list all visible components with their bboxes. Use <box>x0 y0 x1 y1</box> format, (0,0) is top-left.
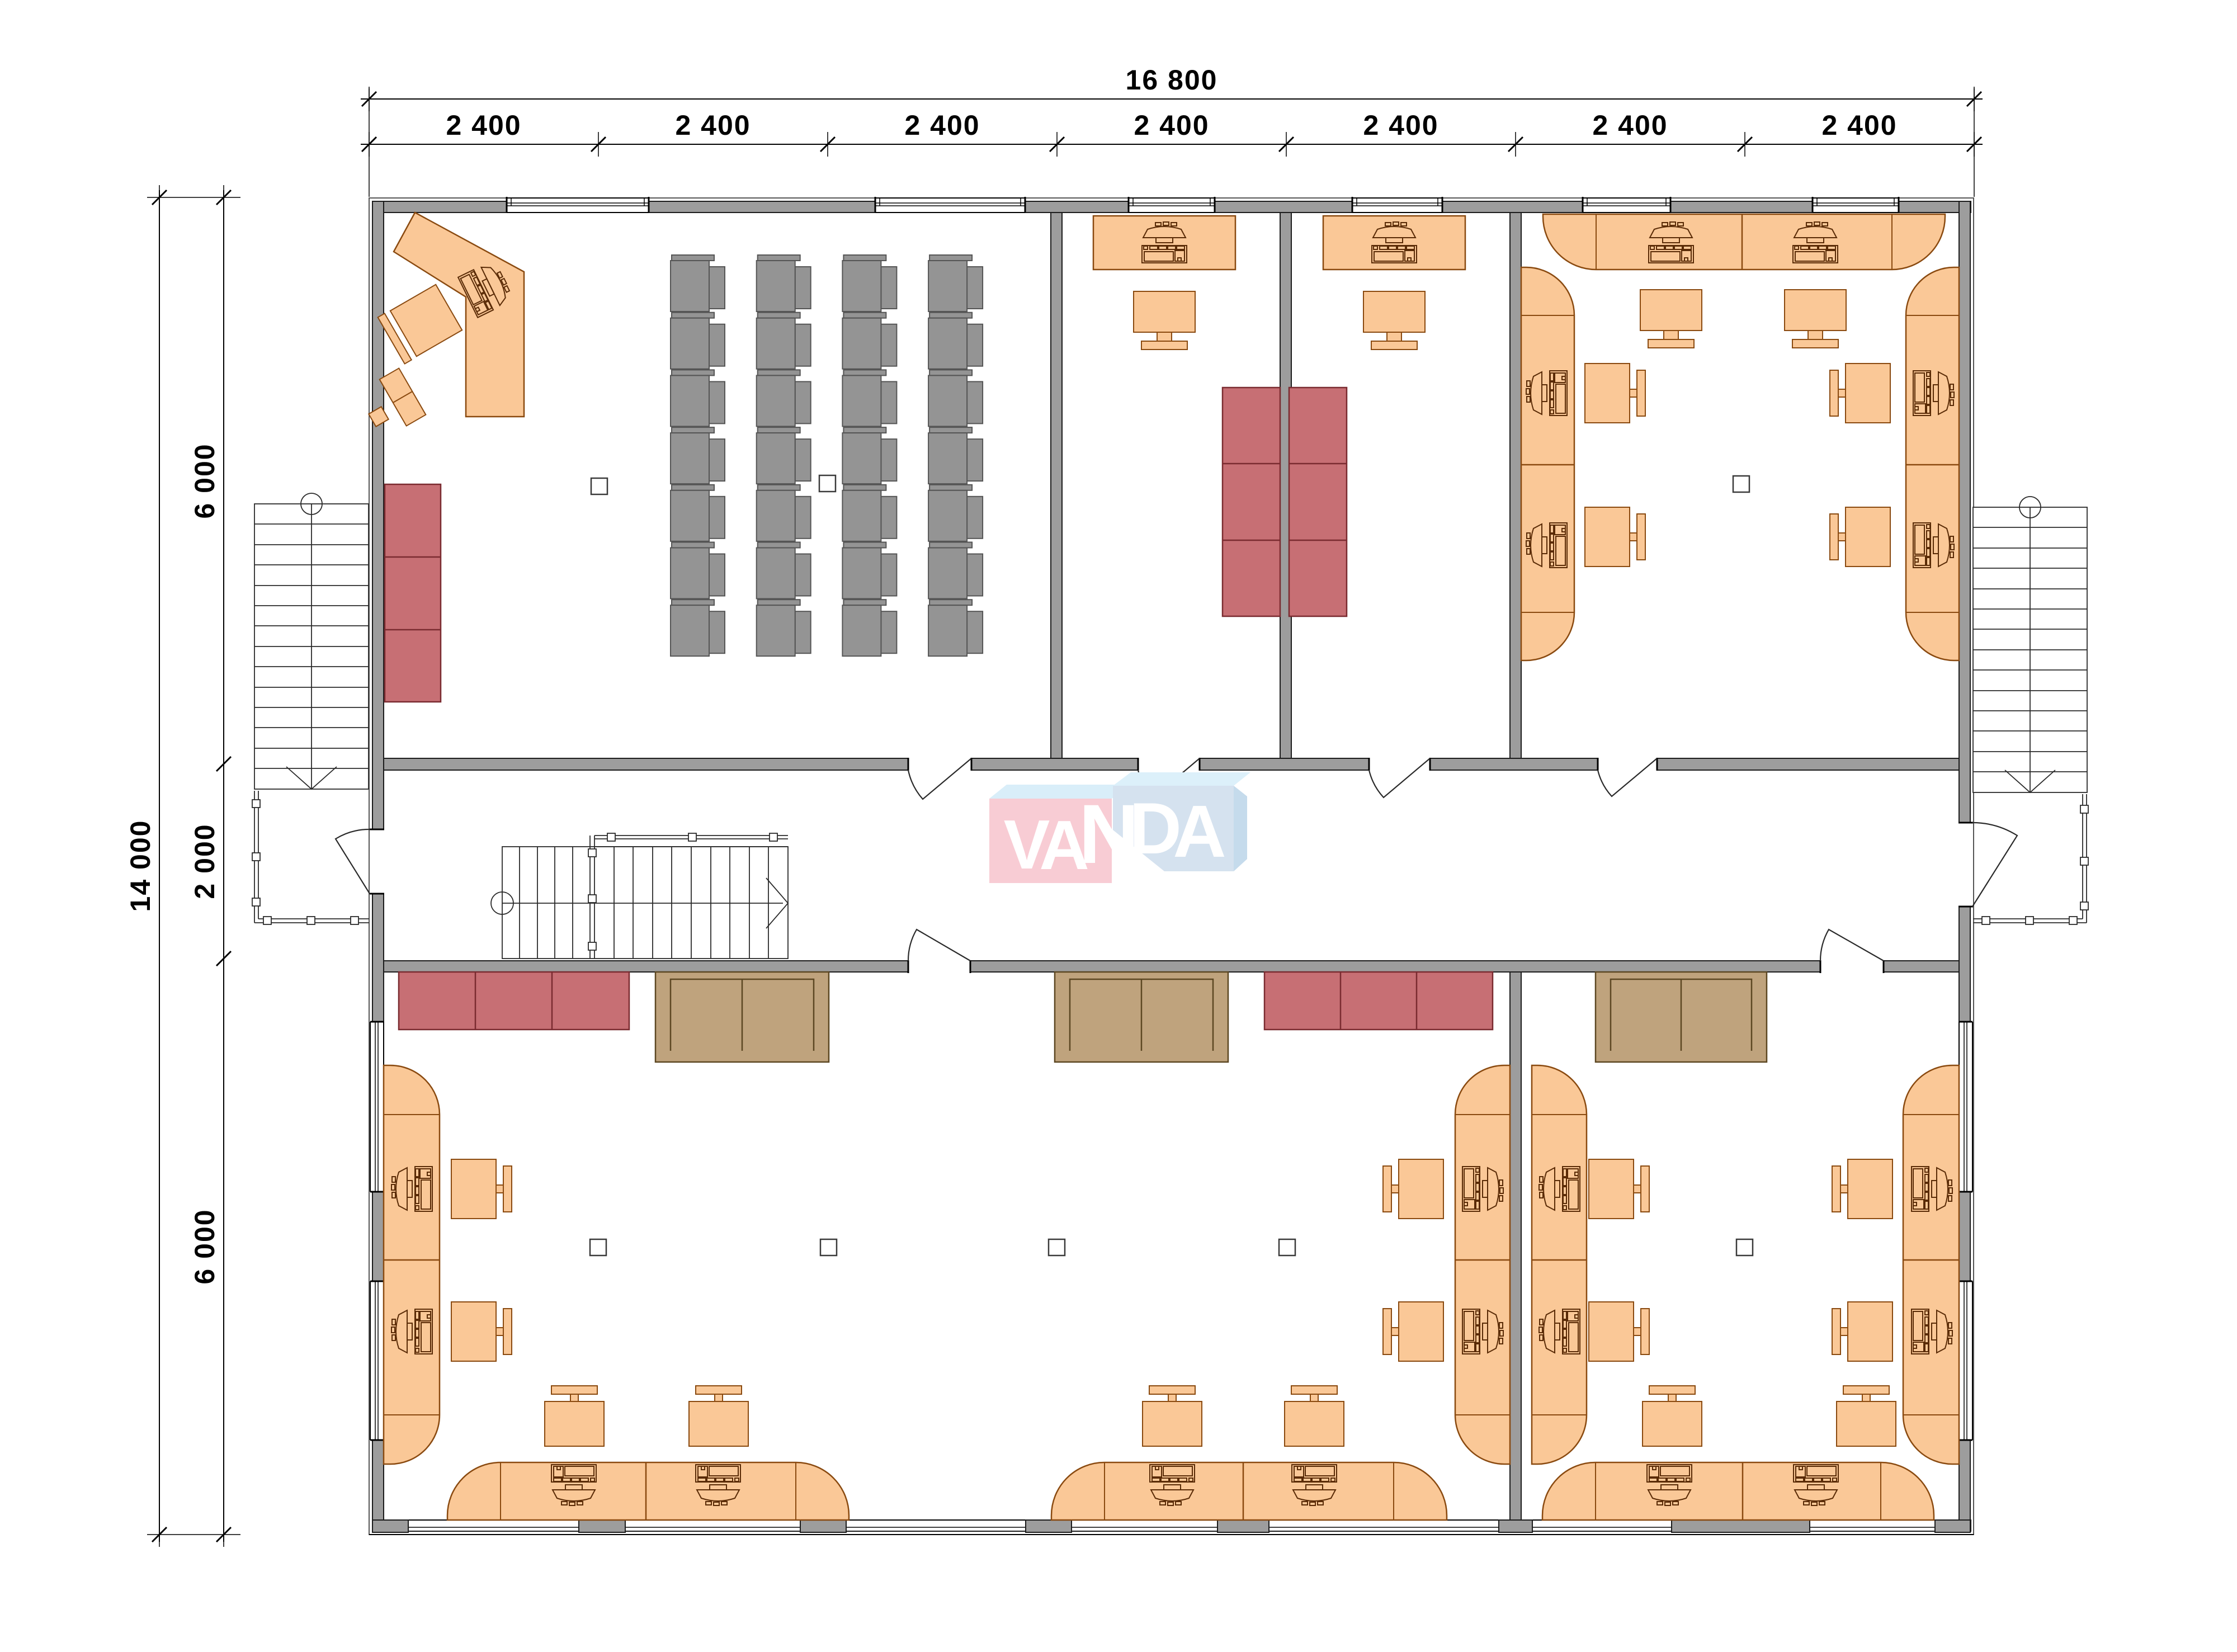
svg-text:16 800: 16 800 <box>1126 64 1218 96</box>
svg-text:2 400: 2 400 <box>1592 110 1668 141</box>
svg-text:2 400: 2 400 <box>904 110 980 141</box>
svg-text:A: A <box>1173 790 1226 872</box>
svg-text:2 400: 2 400 <box>1821 110 1897 141</box>
svg-text:2 400: 2 400 <box>446 110 521 141</box>
svg-text:6 000: 6 000 <box>189 443 220 518</box>
svg-text:14 000: 14 000 <box>125 820 156 912</box>
svg-text:2 400: 2 400 <box>1363 110 1438 141</box>
svg-text:2 000: 2 000 <box>189 823 220 899</box>
svg-text:6 000: 6 000 <box>189 1209 220 1284</box>
svg-text:2 400: 2 400 <box>1134 110 1209 141</box>
svg-text:2 400: 2 400 <box>675 110 751 141</box>
